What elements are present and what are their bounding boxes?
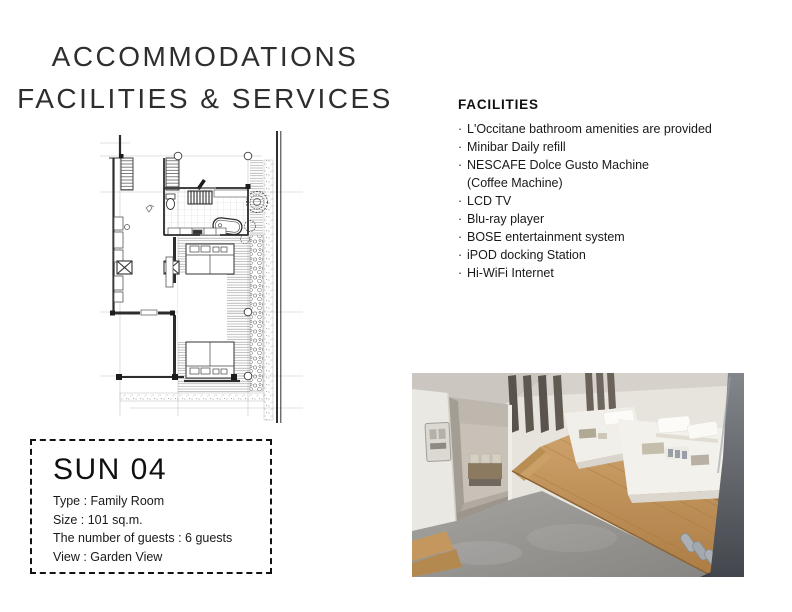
facility-item: ·L'Occitane bathroom amenities are provi… <box>458 120 768 138</box>
facility-item-label: iPOD docking Station <box>467 248 586 262</box>
title-line-2: FACILITIES & SERVICES <box>14 78 396 120</box>
facility-item-label: Hi-WiFi Internet <box>467 266 554 280</box>
room-detail: Type : Family Room <box>53 492 270 511</box>
counter <box>214 190 248 197</box>
facility-item-label: BOSE entertainment system <box>467 230 625 244</box>
room-detail: View : Garden View <box>53 548 270 567</box>
bullet-dot: · <box>458 210 467 228</box>
facility-item-label: NESCAFE Dolce Gusto Machine <box>467 158 649 172</box>
facility-item-continuation: (Coffee Machine) <box>458 174 768 192</box>
closet <box>121 158 133 190</box>
bullet-dot: · <box>458 120 467 138</box>
room-detail: The number of guests : 6 guests <box>53 529 270 548</box>
bedroom-floor <box>178 274 227 342</box>
facility-item: ·LCD TV <box>458 192 768 210</box>
gravel-path-right <box>264 160 273 420</box>
bath-bench <box>168 228 226 235</box>
bullet-dot: · <box>458 246 467 264</box>
door <box>141 310 157 315</box>
facility-item-label: L'Occitane bathroom amenities are provid… <box>467 122 712 136</box>
page-title: ACCOMMODATIONS FACILITIES & SERVICES <box>14 36 396 120</box>
bullet-dot: · <box>458 192 467 210</box>
bullet-dot: · <box>458 138 467 156</box>
facility-item: ·Hi-WiFi Internet <box>458 264 768 282</box>
facility-item-label: LCD TV <box>467 194 511 208</box>
bed-2 <box>186 342 234 378</box>
facility-item: ·Minibar Daily refill <box>458 138 768 156</box>
bullet-dot: · <box>458 264 467 282</box>
facility-item: ·Blu-ray player <box>458 210 768 228</box>
room-info-card: SUN 04 Type : Family Room Size : 101 sq.… <box>30 439 272 574</box>
floor-plan <box>100 131 380 423</box>
sketch-mark <box>146 205 154 212</box>
site-boundary <box>277 131 281 423</box>
desk <box>166 257 173 287</box>
slide: ACCOMMODATIONS FACILITIES & SERVICES FAC… <box>0 0 792 612</box>
vanity <box>188 191 212 204</box>
title-line-1: ACCOMMODATIONS <box>14 36 396 78</box>
facility-item: ·BOSE entertainment system <box>458 228 768 246</box>
facilities-heading: FACILITIES <box>458 97 768 112</box>
closet <box>166 158 179 190</box>
facilities-section: FACILITIES ·L'Occitane bathroom amenitie… <box>458 97 768 282</box>
room-details: Type : Family Room Size : 101 sq.m. The … <box>53 492 270 566</box>
room-detail: Size : 101 sq.m. <box>53 511 270 530</box>
facility-item: ·NESCAFE Dolce Gusto Machine <box>458 156 768 174</box>
facility-item: ·iPOD docking Station <box>458 246 768 264</box>
facility-item-label: Blu-ray player <box>467 212 544 226</box>
bullet-dot: · <box>458 228 467 246</box>
facility-item-label: (Coffee Machine) <box>467 176 563 190</box>
bed-1 <box>186 244 234 274</box>
switch-panel <box>425 422 451 461</box>
sofa-group <box>114 217 130 302</box>
toilet <box>166 194 175 210</box>
bench <box>468 463 502 479</box>
room-name: SUN 04 <box>53 453 270 487</box>
room-photo <box>412 373 744 577</box>
facility-item-label: Minibar Daily refill <box>467 140 566 154</box>
bullet-dot: · <box>458 156 467 174</box>
gravel-path-bottom <box>120 393 264 401</box>
